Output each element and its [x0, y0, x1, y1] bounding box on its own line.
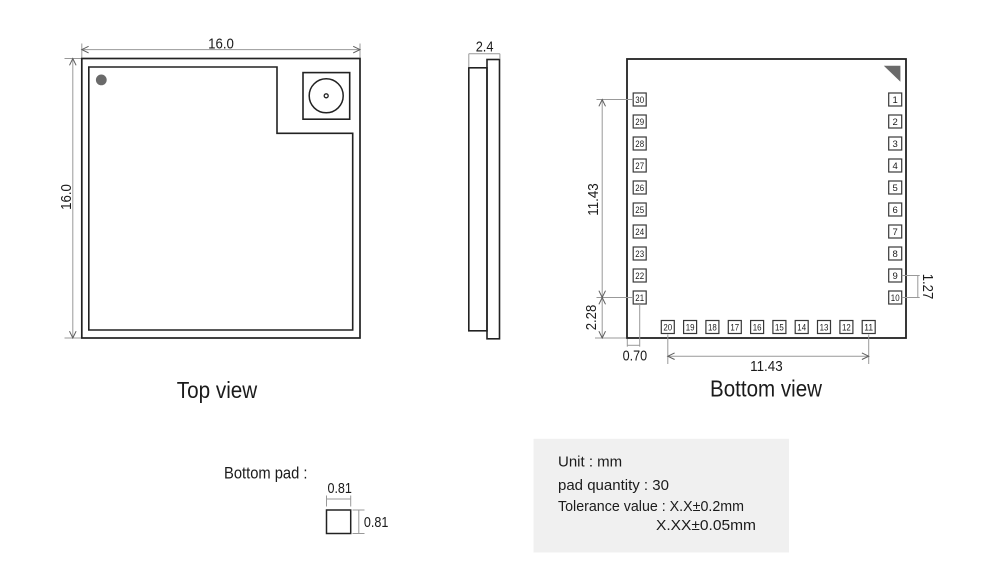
svg-text:1: 1: [893, 95, 898, 106]
svg-text:5: 5: [893, 183, 898, 194]
svg-text:20: 20: [663, 322, 672, 333]
svg-text:Tolerance value : X.X±0.2mm: Tolerance value : X.X±0.2mm: [558, 498, 744, 515]
svg-text:6: 6: [893, 205, 898, 216]
svg-text:3: 3: [893, 139, 898, 150]
svg-text:0.70: 0.70: [623, 347, 648, 364]
svg-text:23: 23: [635, 249, 644, 260]
svg-text:16.0: 16.0: [208, 35, 234, 52]
svg-text:16.0: 16.0: [58, 184, 75, 210]
svg-text:16: 16: [753, 322, 762, 333]
svg-text:8: 8: [893, 249, 898, 260]
svg-text:0.81: 0.81: [364, 514, 389, 531]
svg-text:28: 28: [635, 139, 644, 150]
svg-text:17: 17: [730, 322, 739, 333]
svg-text:2.4: 2.4: [476, 39, 494, 56]
svg-text:Top view: Top view: [177, 377, 258, 403]
svg-text:Bottom pad :: Bottom pad :: [224, 464, 308, 483]
svg-text:X.XX±0.05mm: X.XX±0.05mm: [656, 517, 756, 534]
svg-text:27: 27: [635, 161, 644, 172]
svg-text:13: 13: [820, 322, 829, 333]
svg-text:12: 12: [842, 322, 851, 333]
svg-text:4: 4: [893, 161, 898, 172]
svg-text:29: 29: [635, 117, 644, 128]
svg-text:Unit : mm: Unit : mm: [558, 454, 622, 471]
svg-text:30: 30: [635, 95, 644, 106]
svg-text:11.43: 11.43: [585, 183, 602, 216]
svg-text:1.27: 1.27: [919, 274, 936, 300]
svg-text:7: 7: [893, 227, 898, 238]
svg-text:24: 24: [635, 227, 644, 238]
svg-text:25: 25: [635, 205, 644, 216]
svg-text:22: 22: [635, 271, 644, 282]
svg-text:Bottom view: Bottom view: [710, 375, 822, 401]
svg-text:19: 19: [686, 322, 695, 333]
svg-text:2: 2: [893, 117, 898, 128]
svg-text:0.81: 0.81: [327, 480, 352, 497]
svg-text:14: 14: [797, 322, 806, 333]
svg-text:11: 11: [864, 322, 873, 333]
svg-text:9: 9: [893, 271, 898, 282]
svg-text:18: 18: [708, 322, 717, 333]
svg-text:26: 26: [635, 183, 644, 194]
svg-text:21: 21: [635, 293, 644, 304]
svg-text:10: 10: [891, 293, 900, 304]
svg-text:11.43: 11.43: [750, 358, 783, 375]
svg-text:15: 15: [775, 322, 784, 333]
svg-text:pad quantity : 30: pad quantity : 30: [558, 477, 669, 494]
svg-text:2.28: 2.28: [583, 305, 600, 331]
